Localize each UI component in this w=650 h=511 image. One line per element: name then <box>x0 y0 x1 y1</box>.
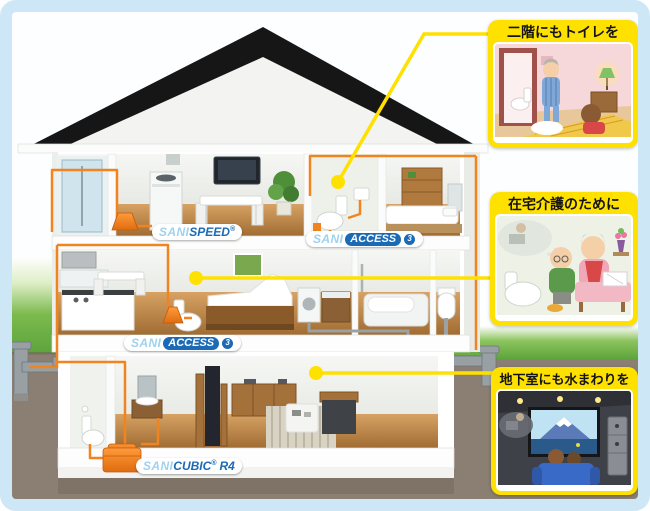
ceiling-vent <box>166 154 180 165</box>
washing-machine-2f <box>150 172 182 230</box>
right-exterior-wall <box>464 152 480 352</box>
illustration-home-care <box>495 214 633 321</box>
wall-divider <box>378 154 386 236</box>
bed-2f <box>386 206 462 233</box>
wall-divider <box>106 356 115 448</box>
wall-picture <box>234 254 262 276</box>
wall-tv <box>214 157 260 184</box>
anchor-dot-basement <box>309 366 323 380</box>
callout-title: 地下室にも水まわりを <box>496 370 633 389</box>
thought-bubble <box>499 412 533 438</box>
callout-title: 在宅介護のために <box>495 195 633 214</box>
speaker-tower <box>221 384 227 446</box>
product-name: SPEED <box>189 225 230 239</box>
brand-prefix: SANI <box>313 232 343 246</box>
product-number: 3 <box>221 337 234 350</box>
brand-prefix: SANI <box>131 336 161 350</box>
illustration-home-theater <box>496 389 633 491</box>
desk-shelf <box>402 168 442 206</box>
laundry-counter <box>322 292 350 322</box>
house-cutaway-poster: SANISPEED® SANI ACCESS 3 SANI ACCESS 3 S… <box>0 0 650 511</box>
callout-second-floor-toilet: 二階にもトイレを <box>488 20 638 148</box>
product-name: ACCESS <box>163 337 219 350</box>
storage-shelf <box>608 417 627 475</box>
basement-shadow <box>58 478 454 494</box>
product-name: ACCESS <box>345 233 401 246</box>
illustration-night-bedroom <box>493 42 633 143</box>
pipe-collar <box>479 346 499 353</box>
eave-fascia <box>18 144 488 153</box>
callout-home-care: 在宅介護のために <box>490 192 638 326</box>
home-theater-art <box>498 391 631 485</box>
pipe-collar <box>11 342 31 349</box>
label-saniaccess-2f: SANI ACCESS 3 <box>306 231 423 247</box>
urinal <box>438 288 455 319</box>
theater-tv <box>205 366 220 446</box>
wall-divider <box>430 250 436 335</box>
speaker-tower <box>196 374 204 448</box>
label-sanicubic: SANICUBIC®R4 <box>136 458 242 474</box>
brand-prefix: SANI <box>159 225 189 239</box>
label-sanispeed: SANISPEED® <box>152 224 242 240</box>
product-model: R4 <box>219 459 234 473</box>
pipe-fade <box>14 392 28 401</box>
home-care-art <box>497 216 631 315</box>
product-name: CUBIC <box>173 459 211 473</box>
wall-divider <box>352 250 358 335</box>
couch <box>320 392 358 434</box>
brand-prefix: SANI <box>143 459 173 473</box>
callout-title: 二階にもトイレを <box>493 23 633 42</box>
hand-basin <box>354 188 369 200</box>
anchor-dot-home-care <box>189 271 203 285</box>
registered-mark: ® <box>230 225 235 234</box>
paper-holder <box>82 406 88 412</box>
vanity-sink <box>132 397 162 418</box>
mirror <box>138 376 156 398</box>
screen-mount-fuji <box>528 407 600 457</box>
label-saniaccess-1f: SANI ACCESS 3 <box>124 335 241 351</box>
product-number: 3 <box>403 233 416 246</box>
coffee-table <box>286 404 318 432</box>
registered-mark: ® <box>211 459 216 468</box>
night-bedroom-art <box>495 44 631 137</box>
first-floor <box>52 250 470 352</box>
washing-machine-1f <box>298 288 320 322</box>
anchor-dot-2f-toilet <box>331 175 345 189</box>
floor-slab-1f <box>52 335 470 352</box>
callout-basement-water: 地下室にも水まわりを <box>491 367 638 495</box>
